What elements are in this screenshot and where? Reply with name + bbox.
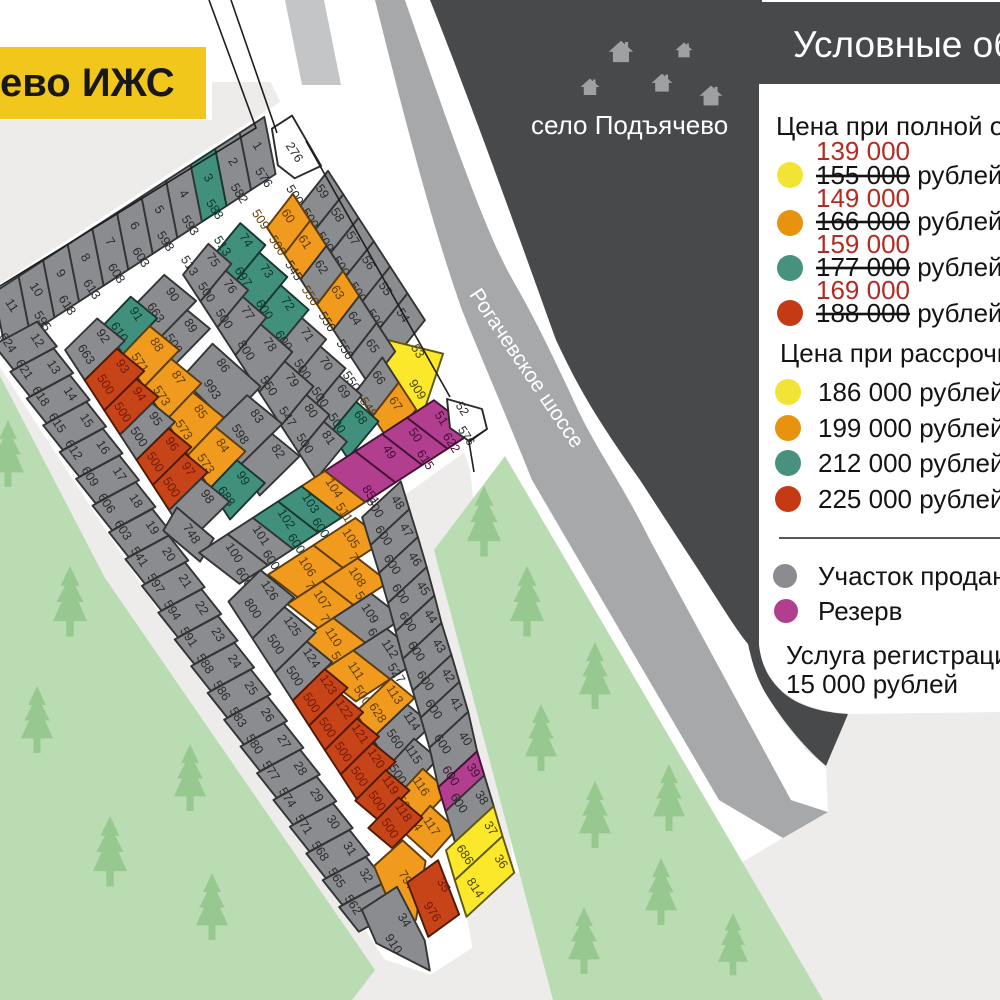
svg-text:Условные об: Условные об [793, 24, 1000, 65]
svg-text:199 000 рублей за: 199 000 рублей за [818, 413, 1000, 443]
svg-text:Цена при рассрочке: Цена при рассрочке [780, 338, 1000, 368]
svg-text:ево ИЖС: ево ИЖС [0, 61, 175, 105]
svg-text:15 000 рублей: 15 000 рублей [786, 669, 958, 699]
svg-text:село Подъячево: село Подъячево [531, 110, 728, 140]
svg-text:Участок продан: Участок продан [818, 561, 1000, 591]
svg-text:177 000 рублей за: 177 000 рублей за [816, 252, 1000, 282]
svg-text:225 000 рублей з: 225 000 рублей з [818, 484, 1000, 514]
svg-text:Резерв: Резерв [818, 596, 902, 626]
svg-text:155 000 рублей за: 155 000 рублей за [816, 160, 1000, 190]
svg-text:186 000 рублей за: 186 000 рублей за [818, 377, 1000, 407]
svg-text:Услуга регистрации: Услуга регистрации [786, 640, 1000, 670]
svg-text:212 000 рублей з: 212 000 рублей з [818, 448, 1000, 478]
svg-text:166 000 рублей за: 166 000 рублей за [816, 206, 1000, 236]
svg-text:188 000 рублей за: 188 000 рублей за [816, 298, 1000, 328]
